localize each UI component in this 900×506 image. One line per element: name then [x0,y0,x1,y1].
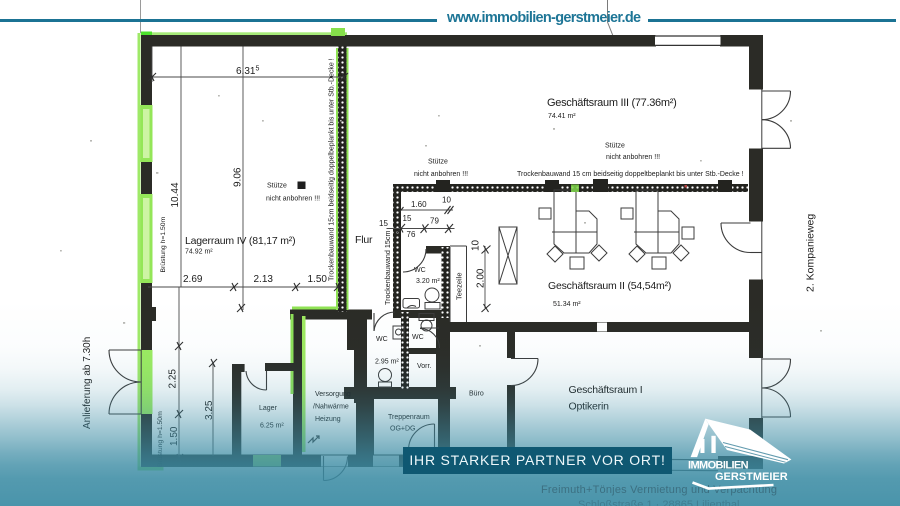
svg-text:10: 10 [442,196,451,205]
svg-text:Trockenbauwand 15 cm beidseiti: Trockenbauwand 15 cm beidseitig doppeltb… [517,171,744,178]
svg-text:Trockenbauwand 15cm beidseitig: Trockenbauwand 15cm beidseitig doppelbep… [329,58,336,281]
svg-text:76: 76 [407,230,416,239]
svg-text:15: 15 [379,219,388,228]
svg-text:2.13: 2.13 [254,274,274,285]
svg-text:2.00: 2.00 [476,268,487,288]
svg-text:3.20 m²: 3.20 m² [416,278,440,285]
svg-text:2. Kompanieweg: 2. Kompanieweg [805,214,817,292]
svg-text:Geschäftsraum III (77.36m²): Geschäftsraum III (77.36m²) [547,97,676,109]
svg-text:15: 15 [403,214,412,223]
svg-text:10: 10 [471,239,482,251]
svg-text:Brüstung h=1.50m: Brüstung h=1.50m [160,216,167,272]
svg-text:WC: WC [414,267,426,274]
svg-text:Stütze: Stütze [428,159,448,166]
svg-text:nicht anbohren !!!: nicht anbohren !!! [266,196,320,203]
svg-text:Trockenbauwand 15cm: Trockenbauwand 15cm [383,231,392,305]
svg-text:1.60: 1.60 [411,200,427,209]
svg-text:10.44: 10.44 [170,182,181,207]
svg-text:nicht anbohren !!!: nicht anbohren !!! [414,171,468,178]
svg-text:Stütze: Stütze [605,143,625,150]
svg-text:Geschäftsraum II (54,54m²): Geschäftsraum II (54,54m²) [548,280,671,292]
svg-text:2.69: 2.69 [183,274,203,285]
svg-text:1.50: 1.50 [308,274,328,285]
svg-text:Lagerraum IV (81,17 m²): Lagerraum IV (81,17 m²) [185,235,295,247]
svg-text:6.315: 6.315 [236,66,259,78]
svg-text:Teezeile: Teezeile [455,272,464,300]
svg-text:IMMOBILIEN: IMMOBILIEN [688,460,749,472]
svg-text:nicht anbohren !!!: nicht anbohren !!! [606,154,660,161]
svg-text:74.92 m²: 74.92 m² [185,249,213,256]
svg-text:GERSTMEIER: GERSTMEIER [715,471,788,483]
svg-text:Stütze: Stütze [267,183,287,190]
svg-text:74.41 m²: 74.41 m² [548,113,576,120]
svg-text:Flur: Flur [355,234,373,246]
svg-text:79: 79 [430,217,439,226]
svg-text:9.06: 9.06 [233,167,244,187]
